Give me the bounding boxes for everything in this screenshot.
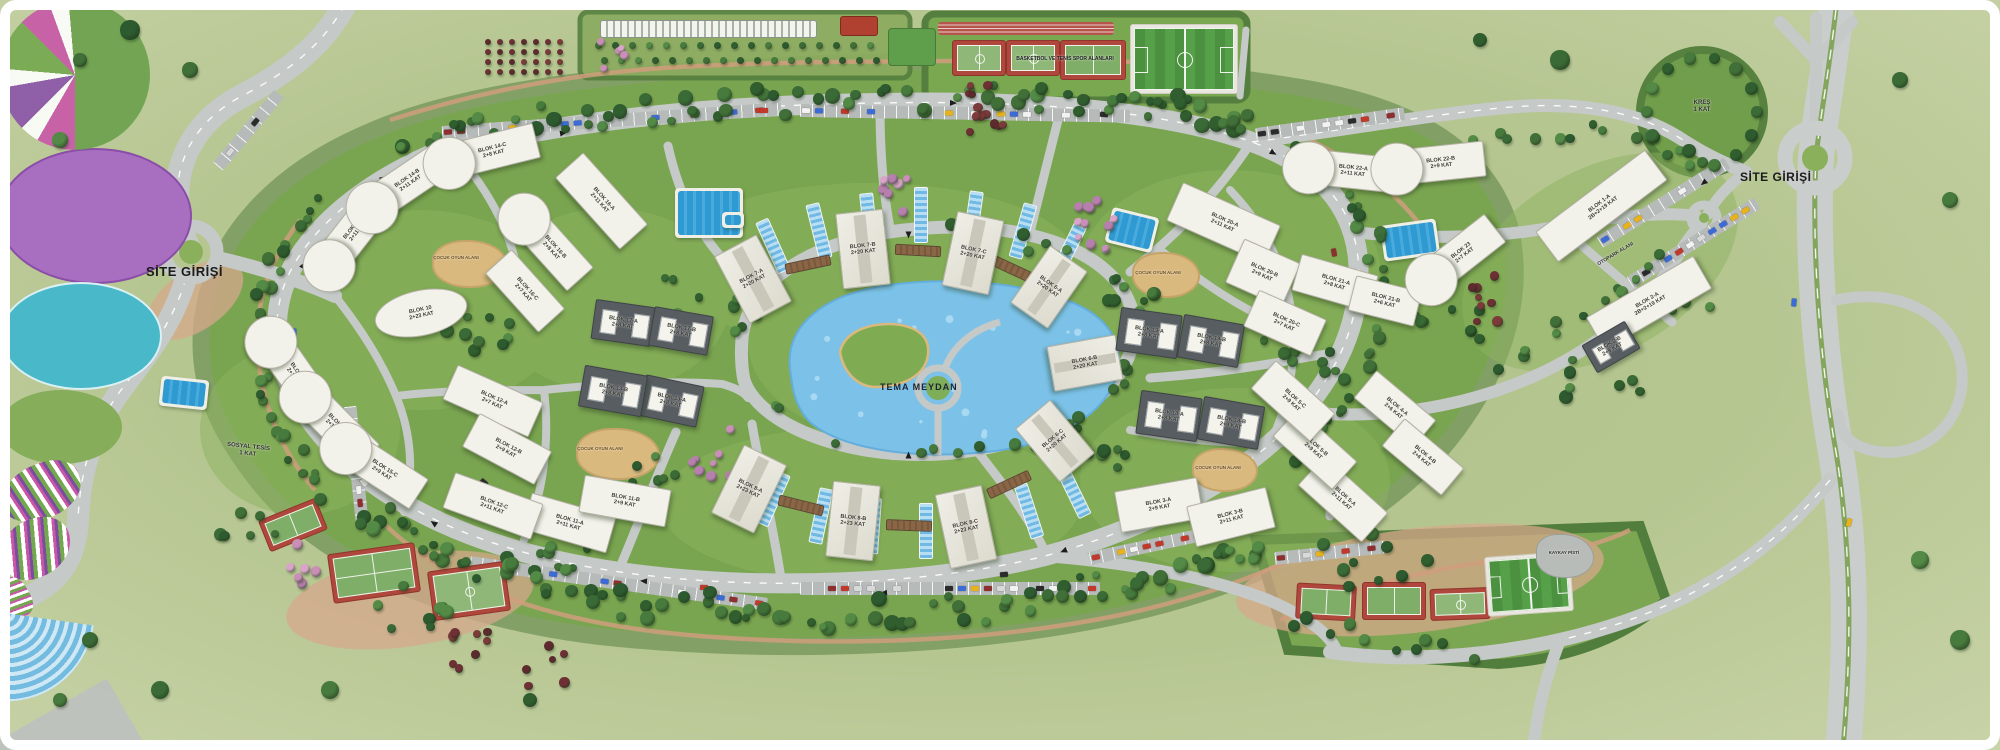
playground-label-2: ÇOCUK OYUN ALANI [572, 446, 628, 451]
skate-label: KAYKAY PİSTİ [1536, 550, 1592, 555]
social-facility-label: SOSYAL TESİS 1 KAT [205, 440, 292, 463]
nursery-name: KREŞ [1694, 100, 1711, 106]
entrance-left-label: SİTE GİRİŞİ [146, 264, 223, 279]
site-plan-frame: KAFE BLOK 1-A2B+2+19 KATBLOK 2-A2B+2+19 … [0, 0, 2000, 750]
entrance-right-label: SİTE GİRİŞİ [1740, 170, 1812, 184]
sports-north-label: BASKETBOL VE TENİS SPOR ALANLARI [1000, 57, 1130, 63]
nursery-label: KREŞ 1 KAT [1672, 100, 1732, 114]
central-plaza-label: TEMA MEYDAN [880, 382, 958, 392]
playground-label-1: ÇOCUK OYUN ALANI [428, 255, 484, 260]
nursery-floors: 1 KAT [1694, 107, 1711, 113]
social-floors: 1 KAT [239, 450, 256, 458]
playground-label-4: ÇOCUK OYUN ALANI [1190, 465, 1246, 470]
labels-layer: SİTE GİRİŞİ SİTE GİRİŞİ TEMA MEYDAN KREŞ… [0, 0, 2000, 750]
playground-label-3: ÇOCUK OYUN ALANI [1130, 270, 1186, 275]
site-plan-canvas: KAFE BLOK 1-A2B+2+19 KATBLOK 2-A2B+2+19 … [0, 0, 2000, 750]
parking-area-label: OTOPARK ALANI [1584, 234, 1649, 276]
